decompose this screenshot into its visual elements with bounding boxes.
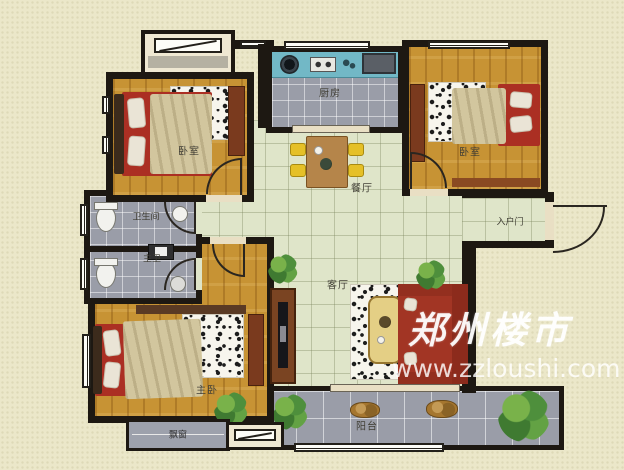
kitchen-window [284, 41, 370, 50]
kettle [320, 158, 332, 170]
bedroom-window [428, 41, 510, 49]
bed-headboard [114, 94, 124, 174]
wardrobe [228, 86, 245, 156]
blanket [452, 88, 506, 144]
room-label-balcony: 阳台 [356, 418, 378, 433]
plant-icon [268, 254, 298, 284]
master-bath-door-opening [196, 258, 202, 290]
bed-headboard [93, 326, 102, 394]
wardrobe [136, 305, 246, 314]
room-label-dining: 餐厅 [351, 180, 373, 195]
desk [248, 314, 264, 386]
room-label-entry: 入户门 [496, 215, 523, 228]
bedroom-door-opening [206, 195, 242, 202]
wardrobe [410, 84, 425, 162]
dining-chair [348, 164, 364, 177]
floor-plan: 卧室 厨房 卧室 餐厅 卫生间 主卫 入户门 客厅 主卧 阳台 飘窗 郑州楼市 … [0, 0, 624, 470]
bay-window-glass [154, 38, 222, 53]
pillow [127, 135, 146, 166]
flower-pot [426, 400, 458, 418]
watermark-brand: 郑州楼市 [408, 300, 572, 354]
flower-pot [350, 402, 380, 418]
room-label-bedroom-top-right: 卧室 [459, 144, 481, 159]
pillow [509, 115, 533, 133]
kitchen-opening-sill [292, 125, 370, 133]
faucet [342, 58, 356, 70]
low-cabinet [452, 178, 540, 187]
bay-window-sill [148, 56, 228, 68]
pillow [103, 361, 122, 389]
room-label-master-bedroom: 主卧 [196, 382, 218, 397]
bay-window-top [141, 30, 235, 76]
bedroom-door-opening [410, 189, 448, 196]
dining-chair [290, 164, 306, 177]
bathroom-window [80, 258, 88, 290]
dish [314, 146, 323, 155]
stove-wok [280, 55, 299, 74]
balcony-window [294, 443, 444, 452]
bedroom-window [102, 136, 110, 154]
entry-door-arc [553, 207, 605, 253]
bathroom-door-opening [196, 202, 202, 234]
plant-icon [498, 390, 550, 442]
dish [377, 336, 385, 344]
room-label-bedroom-top-left: 卧室 [178, 143, 200, 158]
blanket [150, 94, 212, 174]
kitchen-sink [362, 53, 396, 74]
tv-screen [280, 326, 286, 342]
room-label-bathroom: 卫生间 [132, 210, 159, 223]
blanket [123, 319, 204, 400]
gas-stove [310, 57, 336, 72]
master-door-opening [210, 237, 246, 244]
room-label-master-bath: 主卫 [143, 252, 161, 265]
room-label-living: 客厅 [327, 277, 349, 292]
master-window [82, 334, 91, 388]
plant-icon [416, 260, 446, 290]
room-label-kitchen: 厨房 [319, 85, 341, 100]
pillow [127, 97, 147, 128]
balcony-sliding-door-sill [330, 384, 460, 392]
pillow [509, 91, 532, 109]
bathroom-window [80, 204, 88, 236]
bottom-window-glass [234, 429, 276, 441]
toilet-tank [94, 258, 118, 266]
toilet-tank [94, 202, 118, 210]
teapot [379, 316, 391, 328]
bedroom-window [102, 96, 110, 114]
watermark-url: www.zzloushi.com [392, 354, 620, 383]
room-label-bay-window: 飘窗 [169, 428, 187, 441]
pillow [102, 329, 121, 357]
dining-chair [290, 143, 306, 156]
dining-chair [348, 143, 364, 156]
